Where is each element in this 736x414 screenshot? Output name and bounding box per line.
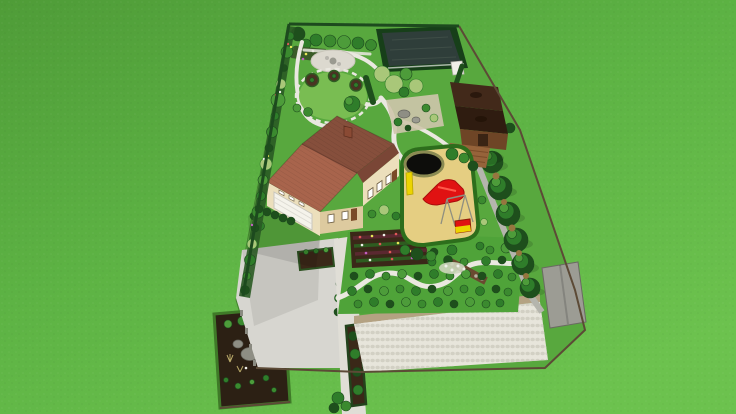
conifer-tree [496,202,520,226]
boulder [398,110,410,118]
conifer-tree [520,278,540,298]
gravel-patio [311,50,355,72]
front-door [351,208,357,221]
front-window [328,214,334,223]
conifer-tree [504,228,528,252]
gazebo-door [478,134,488,146]
white-flower-cluster [439,262,465,274]
chimney [344,126,352,138]
front-window [342,211,348,220]
landscape-3d-render [0,0,736,414]
patio-table [330,58,337,65]
balance-board [406,172,413,195]
screenshot-canvas [0,0,736,414]
shed-pad [542,262,586,328]
conifer-tree [512,253,534,275]
conifer-tree [488,176,512,200]
